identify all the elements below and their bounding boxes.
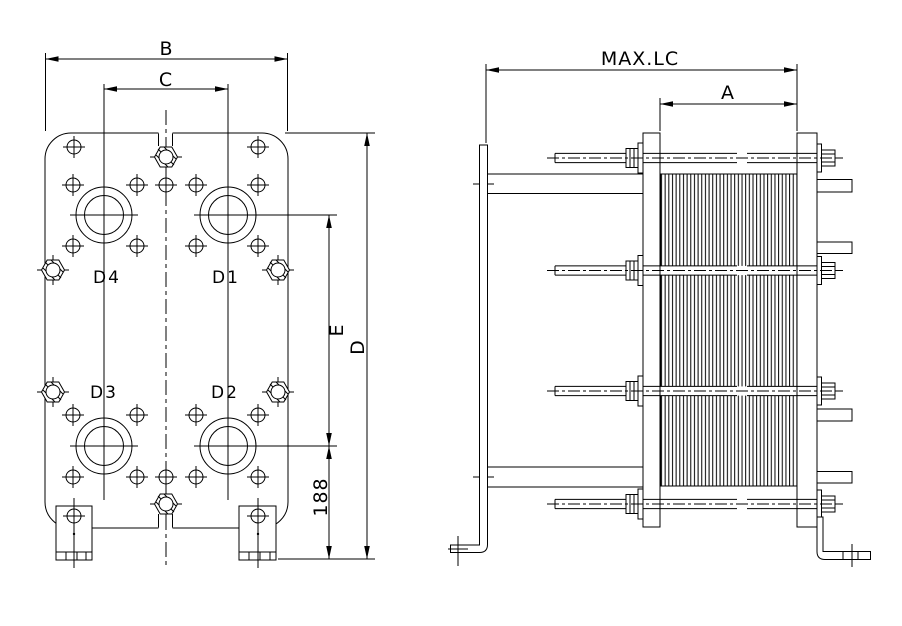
dim-label-188: 188 (310, 477, 332, 516)
dim-label-d: D (347, 339, 369, 355)
fixed-plate (797, 133, 817, 527)
dimension-c: C (104, 69, 228, 92)
dim-label-b: B (159, 38, 173, 60)
port-label-d1: D1 (212, 268, 240, 288)
dim-label-max-lc: MAX.LC (601, 48, 679, 70)
dimension-e: E (326, 215, 348, 446)
tie-bolt (547, 143, 843, 173)
dimension-max-lc: MAX.LC (486, 48, 797, 143)
dimension-188: 188 (310, 446, 332, 559)
drawing-canvas: B C E 188 D (0, 0, 902, 626)
port-label-d3: D3 (90, 383, 118, 403)
dim-label-e: E (326, 323, 348, 336)
pressure-plate (643, 133, 660, 527)
dim-label-a: A (721, 82, 735, 104)
side-view: MAX.LC A (448, 48, 871, 567)
front-view: B C E 188 D (37, 38, 375, 568)
tie-bolt (547, 489, 843, 519)
carrying-bar-top (473, 174, 643, 194)
support-column (448, 145, 488, 566)
guide-bar-bottom (473, 467, 643, 487)
plate-pack (661, 174, 798, 486)
side-foot-right (817, 517, 871, 567)
dim-label-c: C (159, 69, 173, 91)
dimension-a: A (660, 82, 797, 131)
port-label-d4: D4 (93, 268, 121, 288)
side-brackets (817, 180, 852, 484)
port-label-d2: D2 (211, 383, 239, 403)
